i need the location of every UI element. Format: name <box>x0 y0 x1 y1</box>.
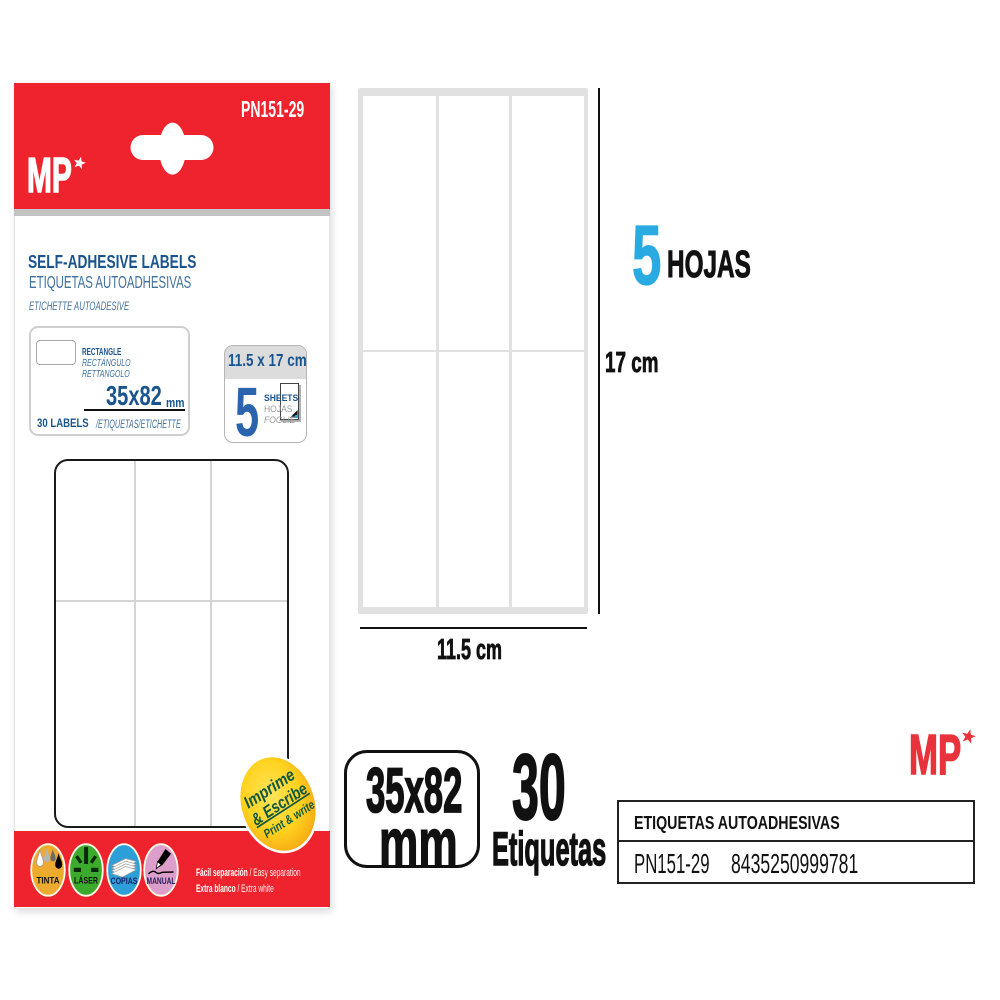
svg-text:COPIAS: COPIAS <box>111 876 138 886</box>
svg-text:MANUAL: MANUAL <box>147 876 176 886</box>
svg-text:LÁSER: LÁSER <box>74 876 99 886</box>
svg-text:TINTA: TINTA <box>37 876 61 886</box>
